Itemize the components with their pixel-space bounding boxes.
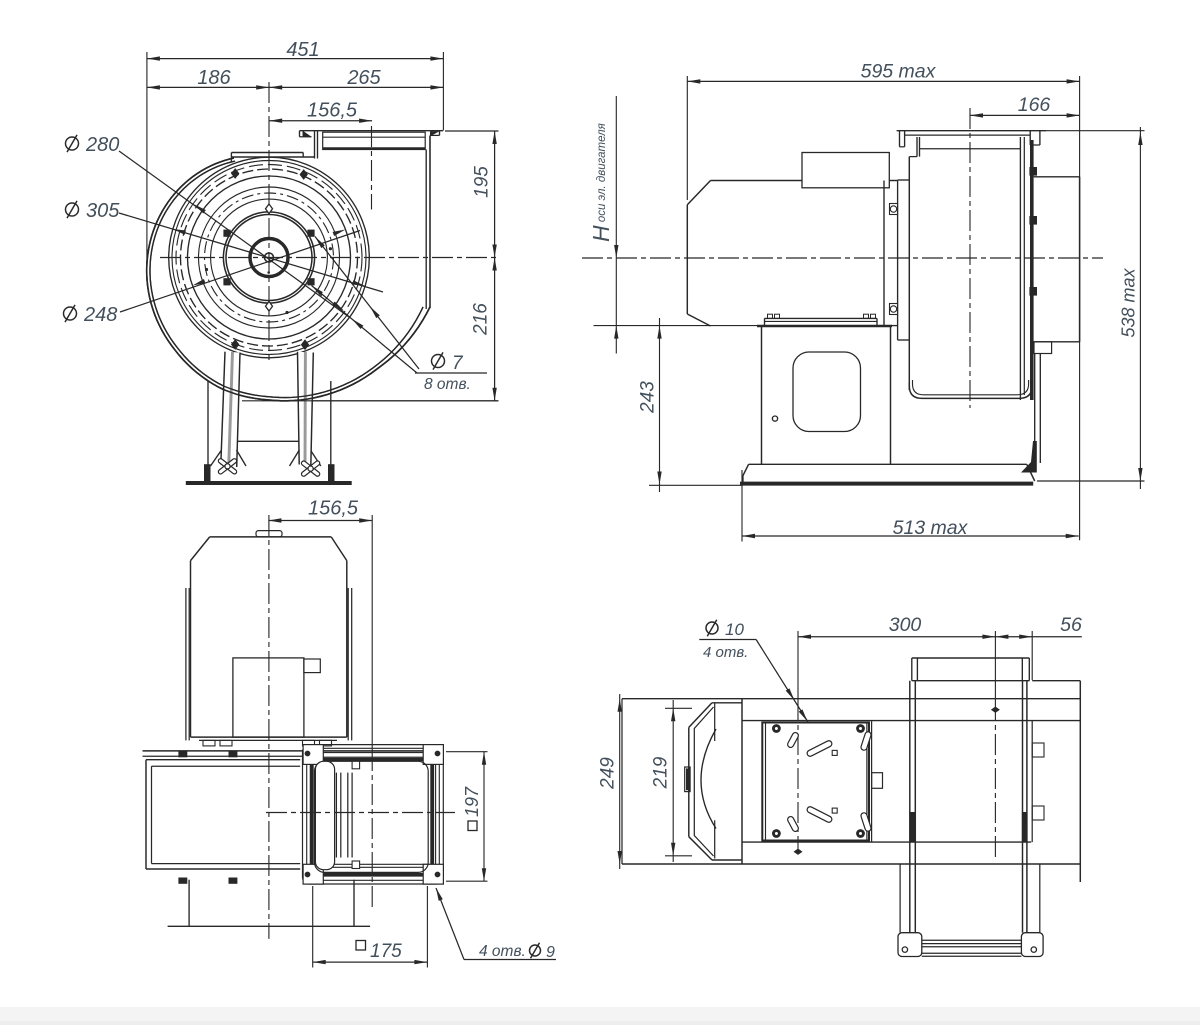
svg-text:156,5: 156,5 <box>308 498 359 520</box>
svg-text:595 max: 595 max <box>861 61 937 83</box>
svg-text:280: 280 <box>85 134 119 156</box>
svg-text:305: 305 <box>86 200 120 222</box>
svg-text:156,5: 156,5 <box>307 100 358 122</box>
svg-text:265: 265 <box>346 67 381 89</box>
svg-text:219: 219 <box>651 756 672 789</box>
svg-text:248: 248 <box>83 304 117 326</box>
svg-text:195: 195 <box>472 166 493 198</box>
svg-text:8 отв.: 8 отв. <box>424 376 471 393</box>
svg-text:4 отв.: 4 отв. <box>703 644 748 661</box>
svg-text:243: 243 <box>638 381 659 414</box>
svg-text:186: 186 <box>197 67 231 89</box>
svg-text:197: 197 <box>462 786 482 817</box>
svg-text:216: 216 <box>471 303 492 336</box>
svg-text:249: 249 <box>598 757 619 790</box>
svg-text:4 отв.: 4 отв. <box>479 943 526 960</box>
svg-text:10: 10 <box>725 620 744 639</box>
svg-text:300: 300 <box>889 614 922 636</box>
svg-text:513 max: 513 max <box>893 517 969 539</box>
svg-text:538 max: 538 max <box>1119 267 1139 337</box>
svg-text:175: 175 <box>370 941 402 962</box>
svg-text:9: 9 <box>546 944 555 961</box>
svg-text:451: 451 <box>286 39 319 61</box>
svg-text:166: 166 <box>1018 94 1051 116</box>
svg-text:7: 7 <box>452 353 464 374</box>
svg-text:56: 56 <box>1060 614 1082 636</box>
